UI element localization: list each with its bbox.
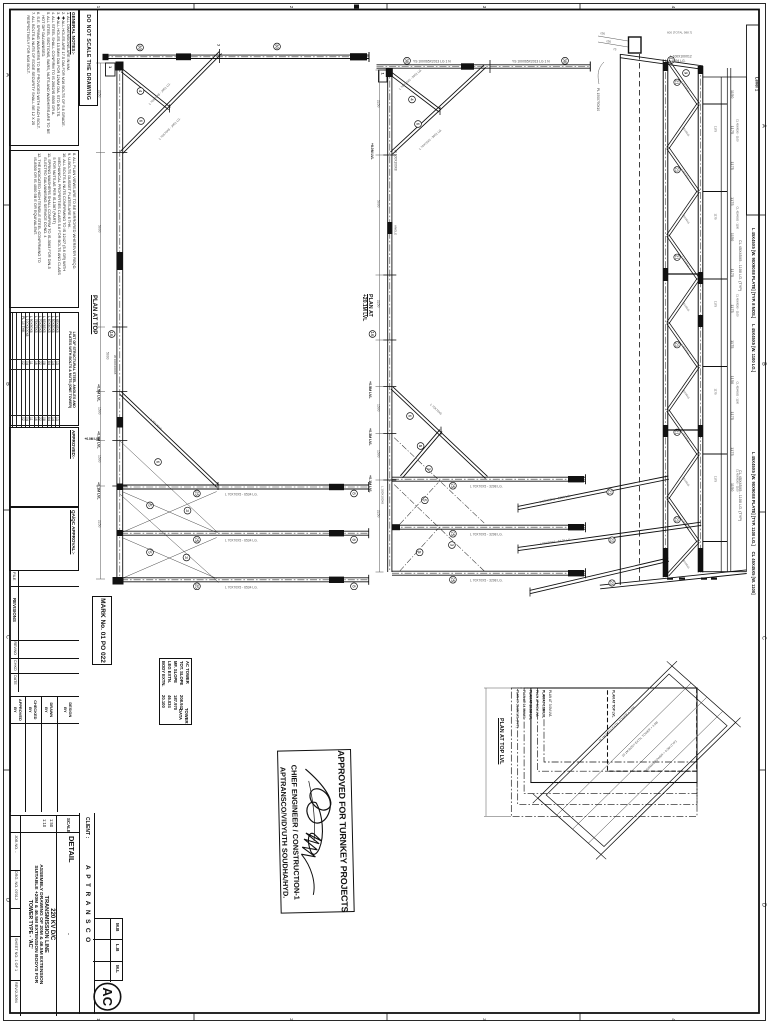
svg-text:YS 100X65X2013 LG 1 N: YS 100X65X2013 LG 1 N: [512, 60, 550, 64]
svg-text:21: 21: [608, 490, 613, 495]
svg-text:A: A: [761, 124, 767, 128]
svg-text:1175: 1175: [714, 214, 718, 220]
svg-text:16: 16: [109, 332, 114, 337]
svg-text:150: 150: [606, 39, 612, 44]
svg-text:25: 25: [194, 584, 199, 589]
svg-text:30: 30: [275, 44, 280, 49]
svg-text:+0.1M LVL: +0.1M LVL: [368, 475, 372, 493]
svg-text:25: 25: [194, 491, 199, 496]
svg-text:2250: 2250: [377, 300, 381, 308]
svg-text:L 100X100X12: L 100X100X12: [670, 55, 692, 59]
svg-text:L 70X70X5 - 3051 LG.: L 70X70X5 - 3051 LG.: [418, 128, 443, 151]
svg-text:21: 21: [675, 342, 680, 347]
svg-text:NORMAL TOWER + 0.0M (TYP): NORMAL TOWER + 0.0M (TYP): [644, 739, 678, 772]
svg-text:1500: 1500: [98, 455, 102, 463]
svg-text:L 100X100X8: L 100X100X8: [381, 486, 385, 504]
svg-text:1: 1: [381, 73, 386, 76]
svg-text:PLAN AT 14.6M LVL: PLAN AT 14.6M LVL: [522, 690, 526, 719]
svg-text:+0.3M LVL: +0.3M LVL: [368, 428, 372, 446]
svg-text:L 65X65X5: L 65X65X5: [680, 299, 691, 312]
svg-text:2250: 2250: [98, 520, 102, 528]
svg-text:L 65X65X5: L 65X65X5: [680, 124, 691, 137]
svg-text:23: 23: [610, 581, 615, 586]
svg-text:C: C: [761, 636, 767, 640]
svg-text:1175: 1175: [714, 476, 718, 482]
svg-text:L 70X70X5 - 2051 LG.: L 70X70X5 - 2051 LG.: [398, 68, 423, 91]
svg-text:2250: 2250: [98, 90, 102, 98]
svg-text:1175: 1175: [714, 301, 718, 307]
svg-text:L 65X65X5: L 65X65X5: [680, 168, 691, 181]
svg-text:L 70X70X5 - 6534 LG.: L 70X70X5 - 6534 LG.: [225, 493, 258, 497]
svg-text:L 70X70X5 - 3298 LG.: L 70X70X5 - 3298 LG.: [470, 485, 503, 489]
svg-text:21: 21: [675, 430, 680, 435]
svg-text:AC: AC: [100, 987, 115, 1006]
svg-text:+0.5M LVL: +0.5M LVL: [97, 384, 101, 402]
svg-text:1500: 1500: [98, 407, 102, 415]
svg-text:Level 1: Level 1: [755, 77, 760, 92]
svg-text:30: 30: [563, 58, 568, 63]
svg-text:PLAN AT 3.0M LVL: PLAN AT 3.0M LVL: [548, 690, 552, 717]
svg-text:D: D: [761, 903, 767, 907]
svg-text:1500: 1500: [377, 450, 381, 458]
svg-text:21: 21: [675, 255, 680, 260]
svg-text:1: 1: [108, 66, 113, 69]
svg-text:L 70X70X5: L 70X70X5: [429, 403, 443, 416]
svg-text:L 65X65X5: L 65X65X5: [680, 256, 691, 269]
svg-text:5000: 5000: [106, 352, 110, 360]
svg-text:2594 LG.: 2594 LG.: [672, 59, 686, 63]
svg-text:CL 45X45X5 - 1100: CL 45X45X5 - 1100: [736, 119, 740, 142]
svg-text:600 [TOTAL 988.7]: 600 [TOTAL 988.7]: [667, 31, 692, 35]
svg-text:25: 25: [450, 483, 455, 488]
svg-text:PLAN AT TOP LVL: PLAN AT TOP LVL: [612, 690, 616, 717]
svg-text:L 65X65X5: L 65X65X5: [680, 81, 691, 94]
svg-text:L 70X70X5 - 3051 LG.: L 70X70X5 - 3051 LG.: [158, 117, 182, 141]
svg-text:150: 150: [600, 31, 606, 36]
svg-text:2250: 2250: [377, 100, 381, 108]
svg-text:75: 75: [613, 47, 617, 52]
svg-text:25: 25: [450, 531, 455, 536]
svg-text:PLAN AT 20.1M LVL (TYP): PLAN AT 20.1M LVL (TYP): [516, 690, 520, 728]
svg-text:21: 21: [675, 517, 680, 522]
svg-text:25: 25: [194, 537, 199, 542]
svg-text:PLAN AT 10.6M LVL: PLAN AT 10.6M LVL: [529, 690, 533, 720]
svg-text:5000: 5000: [98, 225, 102, 233]
svg-text:PLAN AT 8.3M LVL: PLAN AT 8.3M LVL: [535, 690, 539, 717]
svg-text:L 65X65X5: L 65X65X5: [680, 431, 691, 444]
svg-text:1500: 1500: [377, 404, 381, 412]
svg-text:L 65X65X5: L 65X65X5: [680, 557, 691, 570]
svg-text:5000: 5000: [377, 200, 381, 208]
svg-text:W 100X100X8: W 100X100X8: [113, 355, 117, 375]
svg-text:PL 150X750X10: PL 150X750X10: [596, 88, 600, 111]
svg-text:B: B: [761, 362, 767, 366]
svg-text:L 70X70X5 - 6534 LG.: L 70X70X5 - 6534 LG.: [225, 539, 258, 543]
svg-text:+8.0M LVL: +8.0M LVL: [370, 143, 374, 160]
svg-text:2: 2: [289, 6, 294, 9]
svg-text:YS 100X65X2013 LG 1 N: YS 100X65X2013 LG 1 N: [413, 60, 451, 64]
svg-text:+0.0M LVL: +0.0M LVL: [85, 437, 101, 441]
svg-text:CL 45X45X5 - 1100: CL 45X45X5 - 1100: [736, 207, 740, 230]
svg-text:ANGLE: ANGLE: [394, 225, 398, 235]
svg-text:L 70X70X5 - 6534 LG.: L 70X70X5 - 6534 LG.: [225, 585, 258, 589]
svg-text:L 90X90X6 - 5126 LG.: L 90X90X6 - 5126 LG.: [540, 538, 572, 546]
svg-text:L 65X65X5: L 65X65X5: [680, 343, 691, 356]
svg-text:L 65X65X5: L 65X65X5: [680, 387, 691, 400]
svg-text:25: 25: [450, 577, 455, 582]
svg-text:+0.1M LVL: +0.1M LVL: [97, 482, 101, 500]
svg-text:1175: 1175: [714, 389, 718, 395]
svg-text:22: 22: [610, 538, 615, 543]
svg-text:CL 45X45X5 - 1100: CL 45X45X5 - 1100: [736, 382, 740, 405]
svg-text:L 65X65X5: L 65X65X5: [680, 212, 691, 225]
svg-text:L 65X65X5: L 65X65X5: [680, 474, 691, 487]
svg-text:26.1M BODY EXTN. TOWER + 7.5M: 26.1M BODY EXTN. TOWER + 7.5M: [598, 705, 636, 743]
svg-text:L 70X70X5 - 3298 LG.: L 70X70X5 - 3298 LG.: [470, 533, 503, 537]
svg-text:21: 21: [675, 80, 680, 85]
svg-text:7: 7: [216, 44, 221, 47]
svg-text:+0.5M LVL: +0.5M LVL: [368, 381, 372, 399]
svg-text:30: 30: [405, 58, 410, 63]
svg-text:21: 21: [675, 167, 680, 172]
svg-text:3: 3: [482, 6, 487, 9]
svg-text:30: 30: [138, 45, 143, 50]
svg-text:1175: 1175: [714, 126, 718, 132]
svg-text:L 70X70X5 - 3298 LG.: L 70X70X5 - 3298 LG.: [470, 579, 503, 583]
svg-text:PLAN AT 6.1M LVL: PLAN AT 6.1M LVL: [542, 690, 546, 718]
svg-text:20.1M BODY EXTN. TOWER + 4.5M: 20.1M BODY EXTN. TOWER + 4.5M: [621, 720, 659, 758]
svg-text:2250: 2250: [377, 510, 381, 518]
svg-text:4: 4: [671, 6, 676, 9]
